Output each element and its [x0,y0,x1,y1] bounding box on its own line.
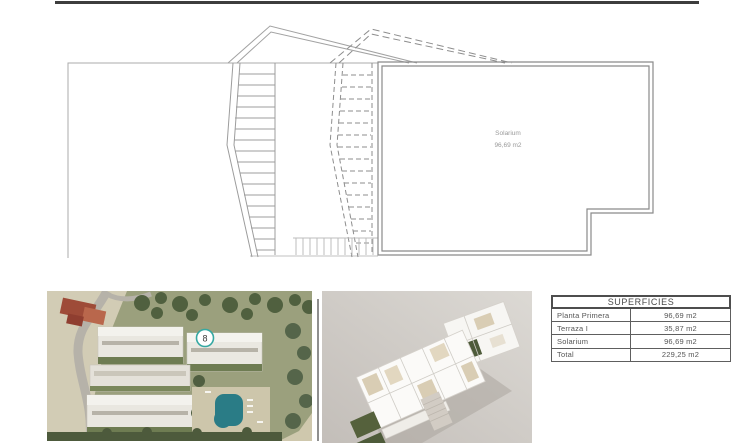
solarium-room-walls [378,62,653,255]
floor-plan-drawing: Solarium 96,69 m2 [0,0,756,268]
roof-ridge-dashed [330,29,512,63]
table-row: Planta Primera 96,69 m2 [552,309,730,322]
table-row: Solarium 96,69 m2 [552,335,730,348]
row-value: 96,69 m2 [631,335,730,347]
solarium-room-area: 96,69 m2 [494,142,521,149]
panel-separator-line [317,299,319,441]
unit-number-badge: 8 [197,330,214,347]
row-label: Solarium [552,335,631,347]
aerial-building-lower [87,395,193,435]
roof-ridge-solid [228,26,417,63]
aerial-building-middle [90,365,190,391]
terrace-steps-solid [227,63,275,257]
stair-hatch-strip [293,238,378,255]
terrace-steps-dashed [330,63,372,257]
plan-top-border-bar [55,1,699,4]
row-value: 35,87 m2 [631,322,730,334]
row-value: 229,25 m2 [631,349,730,361]
row-label: Total [552,349,631,361]
aerial-site-photo: 8 [47,291,312,441]
row-value: 96,69 m2 [631,309,730,321]
plan-left-boundary [68,63,378,258]
floorplan-3d-render [322,291,532,443]
solarium-room-label: Solarium [495,130,521,137]
aerial-building-upper-left [98,327,183,364]
row-label: Planta Primera [552,309,631,321]
aerial-pool-area [192,387,270,437]
unit-number-text: 8 [202,334,207,344]
table-row: Total 229,25 m2 [552,349,730,361]
superficies-table-title: SUPERFICIES [551,295,731,309]
superficies-table-body: Planta Primera 96,69 m2 Terraza I 35,87 … [551,309,731,362]
row-label: Terraza I [552,322,631,334]
table-row: Terraza I 35,87 m2 [552,322,730,335]
superficies-table: SUPERFICIES Planta Primera 96,69 m2 Terr… [551,295,731,362]
